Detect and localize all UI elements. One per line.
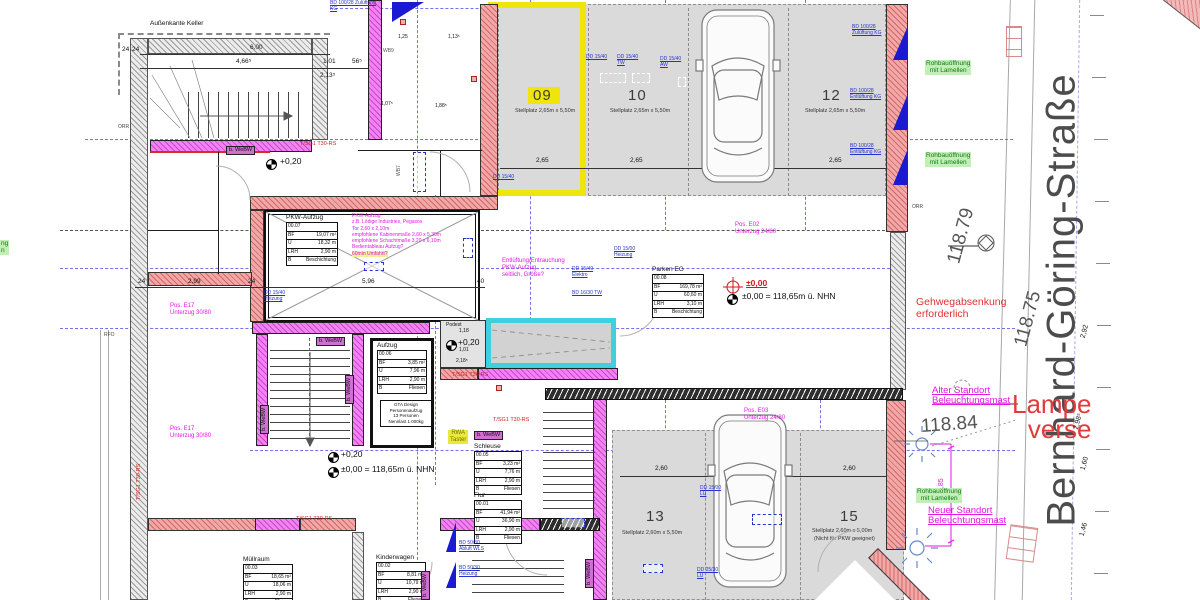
note-line: Beleuchtungsmast <box>928 516 1006 526</box>
note-line: Nennlast 1.000kg <box>382 419 430 425</box>
fire-damper <box>471 76 477 82</box>
level-label: +0,20 <box>458 337 480 347</box>
wall-label: b. WeBW <box>474 431 503 440</box>
note-line: Pos. E17 <box>170 303 211 310</box>
beam-note: Pos. E03 Unterzug 24/80 <box>744 408 785 422</box>
wall-label: b. WeBW <box>585 559 594 588</box>
room-table-flur: Flur00.01BF41,94 m²U36,90 mLRH2,90 mBFli… <box>474 492 522 544</box>
note-line: Rohbauöffnung <box>926 60 970 67</box>
old-lamp-note: Alter Standort Beleuchtungsmast <box>932 386 1010 407</box>
floor-plan-canvas: Bernhard-Göring-Straße 118.79 118.75 118… <box>0 0 1200 600</box>
room-table-kinderwagen: Kinderwagen00.02BF8,81 m²U10,79 mLRH2,90… <box>376 554 426 600</box>
duct-label: DD 15/00 LÜ <box>700 485 726 497</box>
note-line: ng <box>1 240 8 247</box>
duct-label: BD 100/28 Entlüftung KG <box>850 143 892 155</box>
note-line: mit Lamellen <box>926 159 970 166</box>
opening-box <box>413 152 426 192</box>
room-table-muellraum: Müllraum00.03BF18,65 m²U18,06 mLRH2,90 m… <box>243 556 293 600</box>
duct-label: BD 50/30 Heizung <box>459 565 489 577</box>
spec-line-highlighted: 60min Umfahrt? <box>352 251 388 257</box>
note-line: PKW-Aufzug <box>502 265 565 272</box>
dim-label: 24 <box>132 46 139 53</box>
dimension-line <box>135 287 485 288</box>
fire-door-label: T/SG1 T30-RS <box>493 417 529 423</box>
dim-label: 1,25 <box>398 34 408 40</box>
level-label-red: ±0,00 <box>746 278 767 288</box>
dimension-line <box>140 54 330 55</box>
note-line: Beleuchtungsmast <box>932 396 1010 406</box>
dim-label: 6,00 <box>250 44 263 51</box>
dim-label: 1,07⁵ <box>381 101 393 107</box>
note-line: Rohbauöffnung <box>917 488 961 495</box>
wall-label: b. WeBW <box>421 571 430 600</box>
duct-label: BD 16/30 TW <box>572 290 602 296</box>
dim-label: 40 <box>477 278 484 285</box>
dim-label: 2,18⁵ <box>456 358 468 364</box>
duct-label: DD 15/40 Heizung <box>264 290 294 302</box>
opening-box <box>364 262 384 271</box>
dim-label: 1,13⁵ <box>448 34 460 40</box>
wall-label: b. WeBW <box>226 146 255 155</box>
note-line: Unterzug 24/80 <box>735 229 776 236</box>
fire-door-label: T/SG1 T30-RS <box>296 516 332 522</box>
note-line: Taster <box>450 437 466 444</box>
duct-label: DD 15/40 Elektro <box>572 266 602 278</box>
level-label: ±0,00 = 118,65m ü. NHN <box>742 291 836 301</box>
room-table-aufzug: Aufzug00.06BF3,85 m²U7,96 mLRH2,90 mBFli… <box>377 342 427 394</box>
opening-box <box>561 518 585 528</box>
elevator-spec-note: GTA Design Personenaufzug 13 Personen Ne… <box>380 400 432 427</box>
room-table-parken-eg: Parken EG00.08BF169,78 m²U60,60 mLRH3,10… <box>652 266 704 318</box>
opening-box <box>643 564 663 573</box>
beam-note: Pos. E17 Unterzug 30/80 <box>170 426 211 440</box>
opening-note: Rohbauöffnung mit Lamellen <box>916 488 962 503</box>
note-line: Unterzug 24/80 <box>744 415 785 422</box>
note-line: mit Lamellen <box>917 495 961 502</box>
wall-label: b. WeBW <box>260 405 269 434</box>
pkw-spec-note: PKW-Aufzug z.B. Lödige Industries, Pegas… <box>352 213 441 257</box>
duct-label: BD 100/28 Zulüftung KG <box>330 0 376 12</box>
duct-label: DD 25/30 LÜ <box>697 567 723 579</box>
drawing-linework <box>0 0 1200 600</box>
opening-note: Rohbauöffnung mit Lamellen <box>925 152 971 167</box>
room-table-schleuse: Schleuse00.05BF3,23 m²U7,76 mLRH2,90 mBF… <box>474 443 522 495</box>
rwa-button-label: RWA Taster <box>448 430 468 444</box>
duct-label: DD 15/40 <box>493 174 514 180</box>
fire-door-label: T/SG1 T30-RS <box>452 372 488 378</box>
beam-note: Pos. E17 Unterzug 30/80 <box>170 303 211 317</box>
note-line: Unterzug 30/80 <box>170 310 211 317</box>
clipped-green-note: ng n <box>0 240 9 255</box>
duct-label: BD 100/28 Zulüftung KG <box>852 24 894 36</box>
duct-label: DD 15/40 TW <box>617 54 643 66</box>
beam-note: Pos. E02 Unterzug 24/80 <box>735 222 776 236</box>
opening-box <box>463 238 473 258</box>
note-line: Unterzug 30/80 <box>170 433 211 440</box>
sidewalk-note: Gehwegabsenkung erforderlich <box>916 296 1000 320</box>
dim-label: 1,18 <box>459 328 469 334</box>
dim-label: 24 <box>248 278 255 285</box>
dim-label: 56⁵ <box>352 58 362 65</box>
level-symbol <box>328 467 339 478</box>
dim-label: 4,66⁵ <box>236 58 251 65</box>
duct-label: BD 100/28 Entlüftung KG <box>850 88 892 100</box>
note-line: Entlüftung/Entrauchung <box>502 258 565 265</box>
level-symbol <box>328 452 339 463</box>
dim-label: 24 <box>138 278 145 285</box>
level-symbol <box>266 159 277 170</box>
wall-type-label: WB7 <box>396 165 402 176</box>
dim-label: 1,88⁵ <box>435 103 447 109</box>
note-line: Pos. E02 <box>735 222 776 229</box>
wall-label: b. WeBW <box>345 375 354 404</box>
dim-label: 2,99 <box>188 278 201 285</box>
wall-label: b. WeBW <box>316 337 345 346</box>
fire-damper <box>400 19 406 25</box>
note-line: mit Lamellen <box>926 67 970 74</box>
fire-door-label: T/SG1 T30-RS <box>300 141 336 147</box>
dim-label: 1,01 <box>323 58 336 65</box>
note-line: RWA <box>450 430 466 437</box>
duct-label: BD 50/30 Abluft WLS <box>459 540 493 552</box>
level-label: +0,20 <box>341 449 363 459</box>
level-ref-label: ORR <box>118 124 129 130</box>
opening-note: Rohbauöffnung mit Lamellen <box>925 60 971 75</box>
room-table-pkw-aufzug: PKW-Aufzug00.07BF19,07 m²U18,32 mLRH2,90… <box>286 214 338 266</box>
note-line: Pos. E17 <box>170 426 211 433</box>
level-symbol <box>727 294 738 305</box>
dim-label: 2,13⁵ <box>320 72 335 79</box>
vent-note: Entlüftung/Entrauchung PKW-Aufzug seitli… <box>502 258 565 280</box>
level-label: +0,20 <box>280 156 302 166</box>
level-label: ±0,00 = 118,65m ü. NHN <box>341 464 435 474</box>
level-ref-label: ORR <box>912 204 923 210</box>
opening-box <box>752 514 782 525</box>
fire-door-label: T/SG1 T30-RS <box>136 464 142 500</box>
wall-type-label: WB9 <box>383 48 394 54</box>
note-line: Rohbauöffnung <box>926 152 970 159</box>
duct-label: DD 15/40 AW <box>660 56 686 68</box>
duct-label: DD 15/00 Heizung <box>614 246 644 258</box>
dim-label: 5,96 <box>362 278 375 285</box>
duct-label: DD 15/40 <box>586 54 607 60</box>
dimension-line <box>140 68 368 69</box>
dim-label: 1,01 <box>459 347 469 353</box>
new-lamp-note: Neuer Standort Beleuchtungsmast <box>928 506 1006 527</box>
level-symbol <box>446 340 457 351</box>
note-line: Pos. E03 <box>744 408 785 415</box>
dim-label: 24 <box>122 46 129 53</box>
note-line: seitlich, Größe? <box>502 272 565 279</box>
level-ref-label: RFO <box>104 332 115 338</box>
note-line: n <box>1 247 8 254</box>
fire-damper <box>496 385 502 391</box>
